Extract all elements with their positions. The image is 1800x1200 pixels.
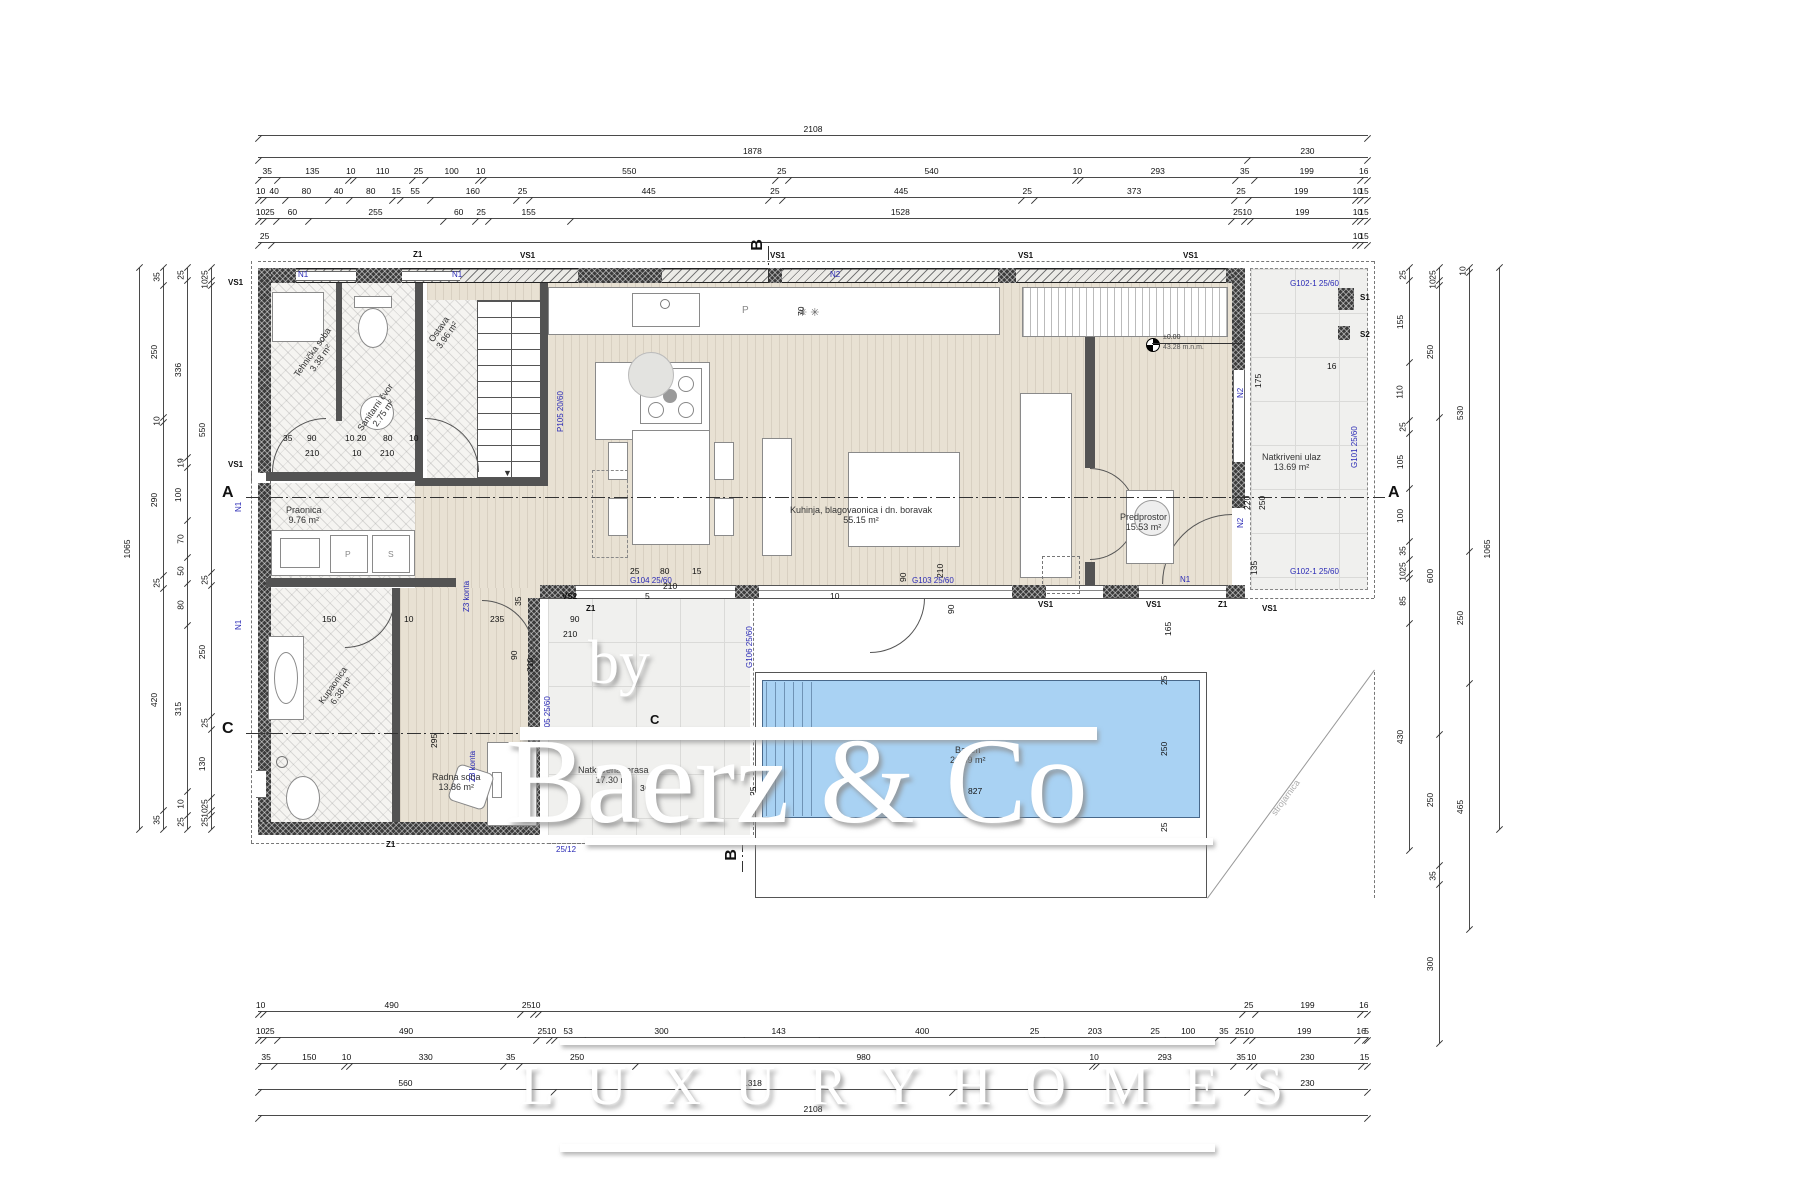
boiler [272,292,324,342]
glass-pier-2 [735,585,759,598]
dim-80b: 80 [660,567,669,576]
vs1-label-5: VS1 [1018,251,1033,260]
shower-head-icon [276,756,288,768]
g103-label: G103 25/60 [912,576,954,585]
dim-135: 135 [1250,561,1259,575]
window-west-b [256,770,266,798]
entrance-south-dashed [1245,598,1374,599]
glass-pier-4 [1103,585,1139,598]
vs1-label-8: VS1 [1146,600,1161,609]
dim-chain-top-3: 3513510110251001055025540102933519916 [258,166,1368,178]
wall-upper-rooms-south [266,472,418,481]
plant-box [1042,556,1080,594]
watermark-rule-2 [560,1038,1215,1045]
dim-90b: 90 [899,573,908,582]
wall-predprostor-a [1085,337,1095,468]
dim-210e: 210 [563,630,577,639]
z1-label-4: Z1 [386,840,395,849]
section-line-b-top [768,246,769,286]
dim-chain-right-3: 10530250465 [1458,268,1470,929]
dim-25c: 25 [1160,676,1169,685]
burner-icon-4 [678,402,694,418]
vs1-label-7: VS1 [1038,600,1053,609]
vs2-label: VS2 [562,592,577,601]
dim-90c: 90 [570,615,579,624]
dim-chain-top-2: 1878230 [258,146,1368,158]
dim-chain-right-4: 1065 [1488,268,1500,829]
dim-80a: 80 [383,434,392,443]
floor-plan-canvas: 2108 1878230 351351011025100105502554010… [0,0,1800,1200]
dim-1020: 10 20 [345,434,366,443]
wall-stairs-kitchen [540,283,548,483]
vs1-label-9: VS1 [1262,604,1277,613]
dishwasher-label: P [742,306,749,316]
dim-chain-right-2: 251025060025035300 [1428,268,1440,1043]
n1-label-5: N1 [1180,575,1190,584]
z3-label-2: Z3 konta [468,751,477,782]
dim-70: 70 [797,307,806,316]
dim-chain-top-4: 1040804080155516025445254452537325199101… [258,186,1368,198]
n1-label-2: N1 [452,270,462,279]
level-elevation: 43.28 m.n.m. [1163,344,1204,351]
dim-35b: 35 [514,597,523,606]
level-line [1152,343,1242,344]
dim-35a: 35 [283,434,292,443]
vs1-label-2: VS1 [228,460,243,469]
wall-north-pier-3 [578,268,662,283]
p105-label: P105 20/60 [556,391,565,432]
dim-90d: 90 [510,651,519,660]
s2-label: S2 [1360,330,1370,339]
washer-label: P [345,550,351,559]
watermark-by: by [588,628,650,699]
dim-chain-left-1: 1065 [128,268,140,829]
dim-10c: 10 [830,592,839,601]
entrance-east-dashed [1374,261,1375,598]
level-value: ±0.00 [1163,334,1180,341]
section-line-a [246,497,1385,498]
room-label-ulaz: Natkriveni ulaz13.69 m² [1262,452,1321,473]
wc-cistern [354,296,392,308]
s1-block [1338,288,1354,310]
g106-label: G106 25/60 [745,626,754,668]
dim-16: 16 [1327,362,1336,371]
faucet-icon [660,299,670,309]
sideboard-dashed [592,470,628,558]
burner-icon-2 [678,376,694,392]
dim-15: 15 [692,567,701,576]
s1-label: S1 [1360,293,1370,302]
stair-arrow-icon: ▼ [503,468,512,478]
z1-label-3: Z1 [1218,600,1227,609]
vs1-label-4: VS1 [770,251,785,260]
dim-250b: 250 [1160,742,1169,756]
dim-chain-top-1: 2108 [258,124,1368,136]
person-figure [628,352,674,398]
dim-chain-left-4: 25105502525025130251025 [200,268,212,829]
watermark-rule-3 [560,1144,1215,1152]
dim-10d: 10 [404,615,413,624]
wall-north-pier-4 [768,268,782,283]
dim-210f: 210 [526,658,535,672]
room-label-praonica: Praonica9.76 m² [286,505,322,526]
dim-chain-right-1: 251551102510510035251085430 [1398,268,1410,850]
desk-monitor [492,772,502,798]
chair-4 [714,498,734,536]
dim-250a: 250 [1258,496,1267,510]
section-letter-b-top: B [749,239,767,251]
wall-tehnicka-sanitarni [336,283,342,421]
dim-220: 220 [1243,496,1252,510]
wall-north-pier-5 [998,268,1016,283]
section-letter-c-left: C [222,720,234,738]
kitchen-sink [632,293,700,327]
glass-pier-5 [1226,585,1245,598]
n2-label-3: N2 [1236,518,1245,528]
dim-10a: 10 [409,434,418,443]
vs1-label-3: VS1 [520,251,535,260]
z3-label-1: Z3 konta [462,581,471,612]
strojarnica-label: strojarnica [1270,778,1302,817]
wall-predprostor-b [1085,562,1095,585]
dim-90a: 90 [307,434,316,443]
dim-210b: 210 [380,449,394,458]
watermark-brand: Baerz & Co [505,712,1088,852]
wc-kupaonica [286,776,320,820]
z1-label-1: Z1 [413,250,422,259]
room-label-kuhinja: Kuhinja, blagovaonica i dn. boravak55.15… [790,505,932,526]
wall-west [258,268,271,835]
glass-pier-3 [1012,585,1046,598]
window-east-n2 [1233,370,1245,462]
vs1-label-6: VS1 [1183,251,1198,260]
dryer-label: S [388,550,394,559]
dim-295: 295 [430,734,439,748]
wall-kupaonica-radna [392,588,400,822]
dim-chain-left-3: 25336191007050803151025 [176,268,188,829]
z1-label-2: Z1 [586,604,595,613]
laundry-sink [280,538,320,568]
dim-chain-bottom-1: 1049025102519916 [258,1000,1368,1012]
dim-175: 175 [1254,374,1263,388]
dim-210c: 210 [663,582,677,591]
burner-icon-3 [648,402,664,418]
roofline-north-dashed [258,261,1374,262]
dim-chain-bottom-2: 1025490251053300143400252032510035251019… [258,1026,1368,1038]
g102-label-bottom: G102-1 25/60 [1290,567,1339,576]
door-arc-hall [870,598,925,653]
stair-rail [511,300,512,478]
strojarnica-dashed-edge [1374,672,1375,898]
dining-table [632,430,710,545]
section-letter-a-left: A [222,484,234,502]
dim-5: 5 [645,592,650,601]
room-label-predprostor: Predprostor15.53 m² [1120,512,1167,533]
vs1-label-1: VS1 [228,278,243,287]
dim-25d: 25 [1160,823,1169,832]
staircase [477,300,547,480]
n1-label-1: N1 [298,270,308,279]
n1-label-3: N1 [234,502,243,512]
dim-150: 150 [322,615,336,624]
dim-chain-top-5: 1025602556025155152825101991015 [258,207,1368,219]
sofa-side [1020,393,1072,578]
kitchen-counter [548,287,1000,335]
dim-210a: 210 [305,449,319,458]
dim-10b: 10 [352,449,361,458]
s2-block [1338,326,1350,340]
wall-rooms-stairs [415,283,423,478]
dim-235: 235 [490,615,504,624]
n2-label-2: N2 [1236,388,1245,398]
wall-stairs-bottom [415,478,548,486]
watermark-tagline: L U X U R Y H O M E S [520,1054,1293,1118]
section-letter-a-right: A [1388,484,1400,502]
level-marker-icon [1146,338,1160,352]
n1-label-4: N1 [234,620,243,630]
dim-25a: 25 [630,567,639,576]
dim-165: 165 [1164,622,1173,636]
watermark-rule-1 [585,838,1213,845]
n2-label-1: N2 [830,270,840,279]
g101-label: G101 25/60 [1350,426,1359,468]
sofa-main [848,452,960,547]
wall-north-pier-2 [356,268,402,283]
dim-chain-top-6: 251015 [258,231,1368,243]
wc-sanitarni [358,308,388,348]
dim-210d: 210 [936,564,945,578]
chair-3 [714,442,734,480]
roofline-west-dashed [251,261,252,843]
g102-label-top: G102-1 25/60 [1290,279,1339,288]
dim-chain-left-2: 35250102902542035 [152,268,164,829]
section-line-c [246,733,520,734]
vanity-basin [274,652,298,704]
wall-praonica-south [266,578,456,587]
dim-90e: 90 [947,605,956,614]
wardrobe-north [1022,287,1228,337]
